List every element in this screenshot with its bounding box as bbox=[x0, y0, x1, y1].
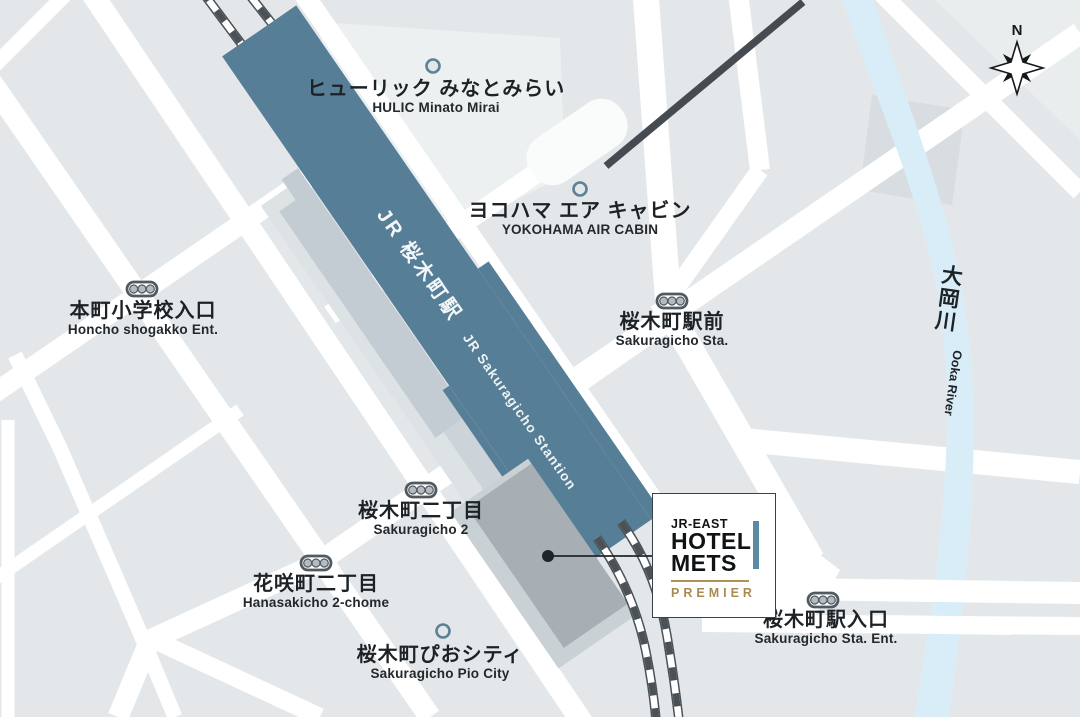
hotel-tier-premier: PREMIER bbox=[671, 586, 775, 600]
traffic-signal-icon bbox=[805, 591, 841, 609]
traffic-signal-icon bbox=[403, 481, 439, 499]
traffic-signal-icon bbox=[298, 554, 334, 572]
poi-circle-aircabin bbox=[571, 180, 589, 198]
traffic-signal-icon bbox=[124, 280, 160, 298]
hotel-name-line2: METS bbox=[671, 553, 775, 575]
hotel-location-dot bbox=[542, 550, 554, 562]
poi-circle-hulic bbox=[424, 57, 442, 75]
compass-north-label: N bbox=[1012, 22, 1023, 39]
hotel-mets-callout: JR-EAST HOTEL METS PREMIER bbox=[652, 493, 776, 618]
hotel-accent-bar bbox=[753, 521, 759, 569]
hotel-gold-rule bbox=[671, 580, 749, 582]
street-map-graphic bbox=[0, 0, 1080, 717]
poi-circle-pio bbox=[434, 622, 452, 640]
traffic-signal-icon bbox=[654, 292, 690, 310]
map-canvas: ヒューリック みなとみらいHULIC Minato Mirai ヨコハマ エア … bbox=[0, 0, 1080, 717]
